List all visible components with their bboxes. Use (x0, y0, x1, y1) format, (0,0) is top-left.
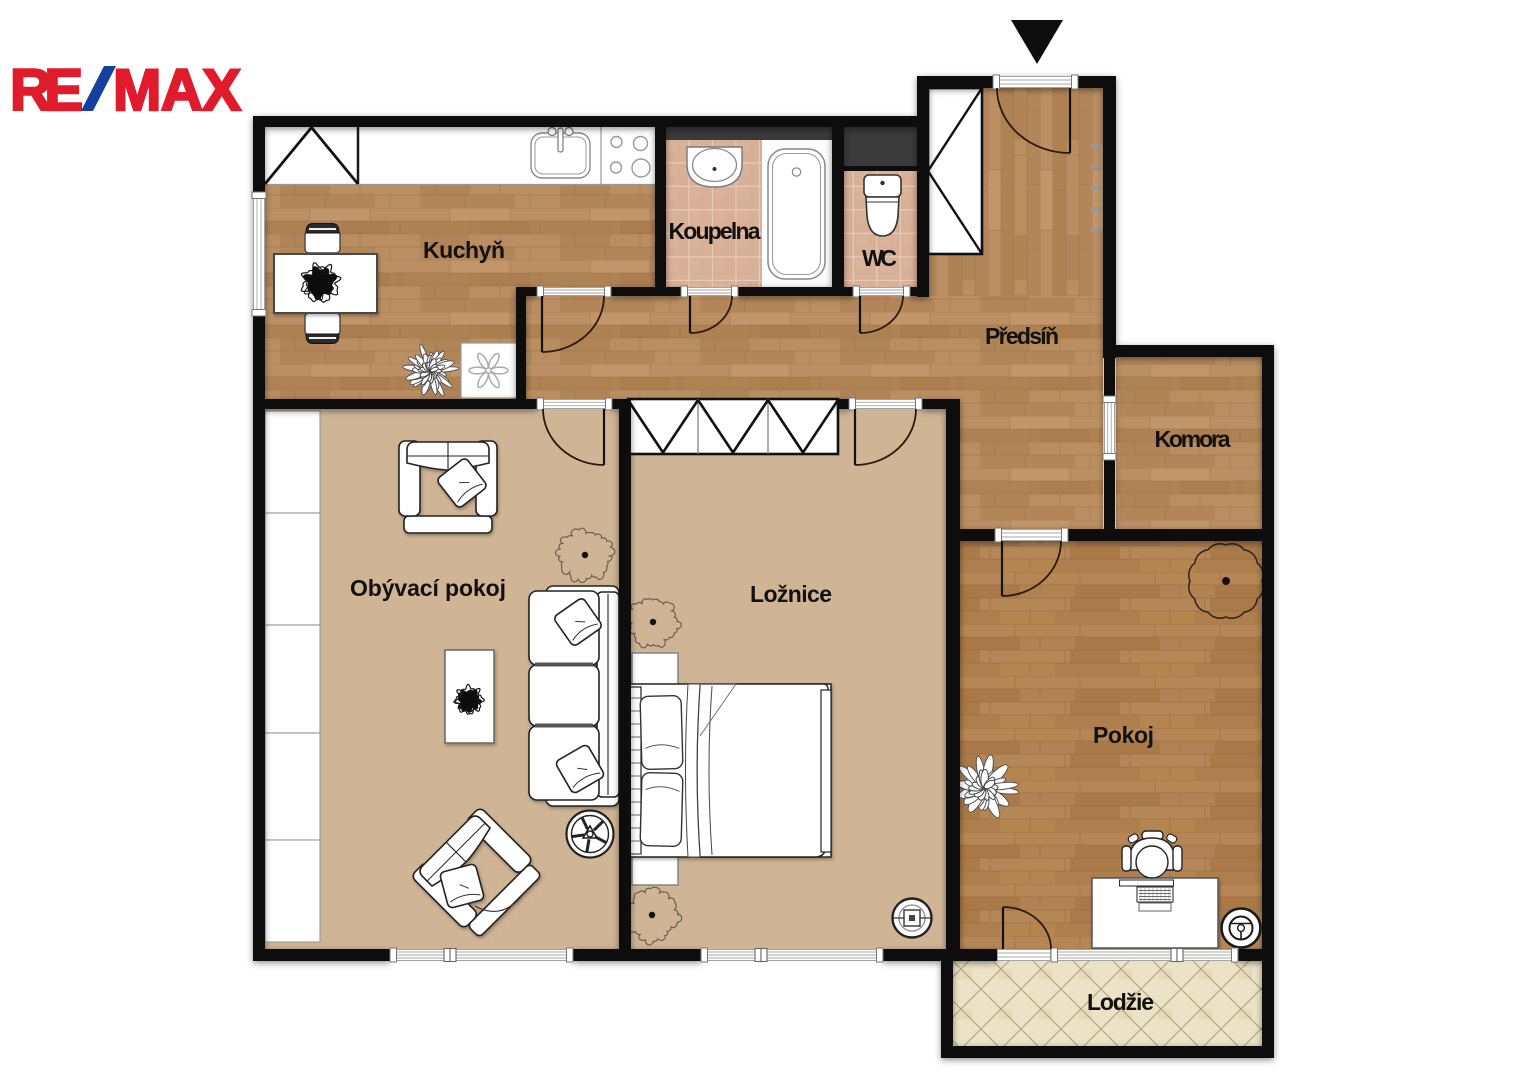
svg-text:Předsíň: Předsíň (985, 323, 1059, 349)
svg-text:RE: RE (10, 58, 83, 123)
svg-text:WC: WC (862, 245, 897, 271)
svg-text:Kuchyň: Kuchyň (423, 237, 505, 263)
svg-text:MAX: MAX (113, 58, 241, 123)
svg-text:Pokoj: Pokoj (1093, 722, 1154, 748)
svg-text:Obývací pokoj: Obývací pokoj (350, 575, 506, 601)
svg-text:Ložnice: Ložnice (750, 581, 832, 607)
svg-text:Komora: Komora (1155, 426, 1231, 452)
svg-text:Lodžie: Lodžie (1087, 989, 1154, 1015)
svg-text:Koupelna: Koupelna (669, 218, 761, 244)
